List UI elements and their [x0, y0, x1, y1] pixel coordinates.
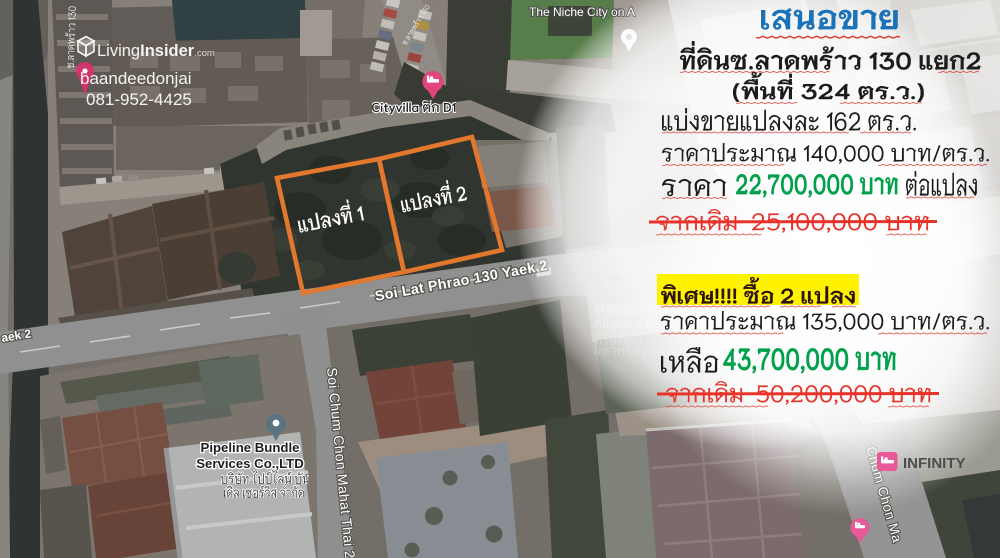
svg-text:INFINITY: INFINITY	[903, 455, 966, 472]
svg-text:081-952-4425: 081-952-4425	[86, 90, 192, 109]
svg-text:baandeedonjai: baandeedonjai	[80, 69, 192, 88]
svg-text:Services Co.,LTD: Services Co.,LTD	[196, 456, 304, 471]
svg-text:Pipeline Bundle: Pipeline Bundle	[201, 440, 300, 455]
